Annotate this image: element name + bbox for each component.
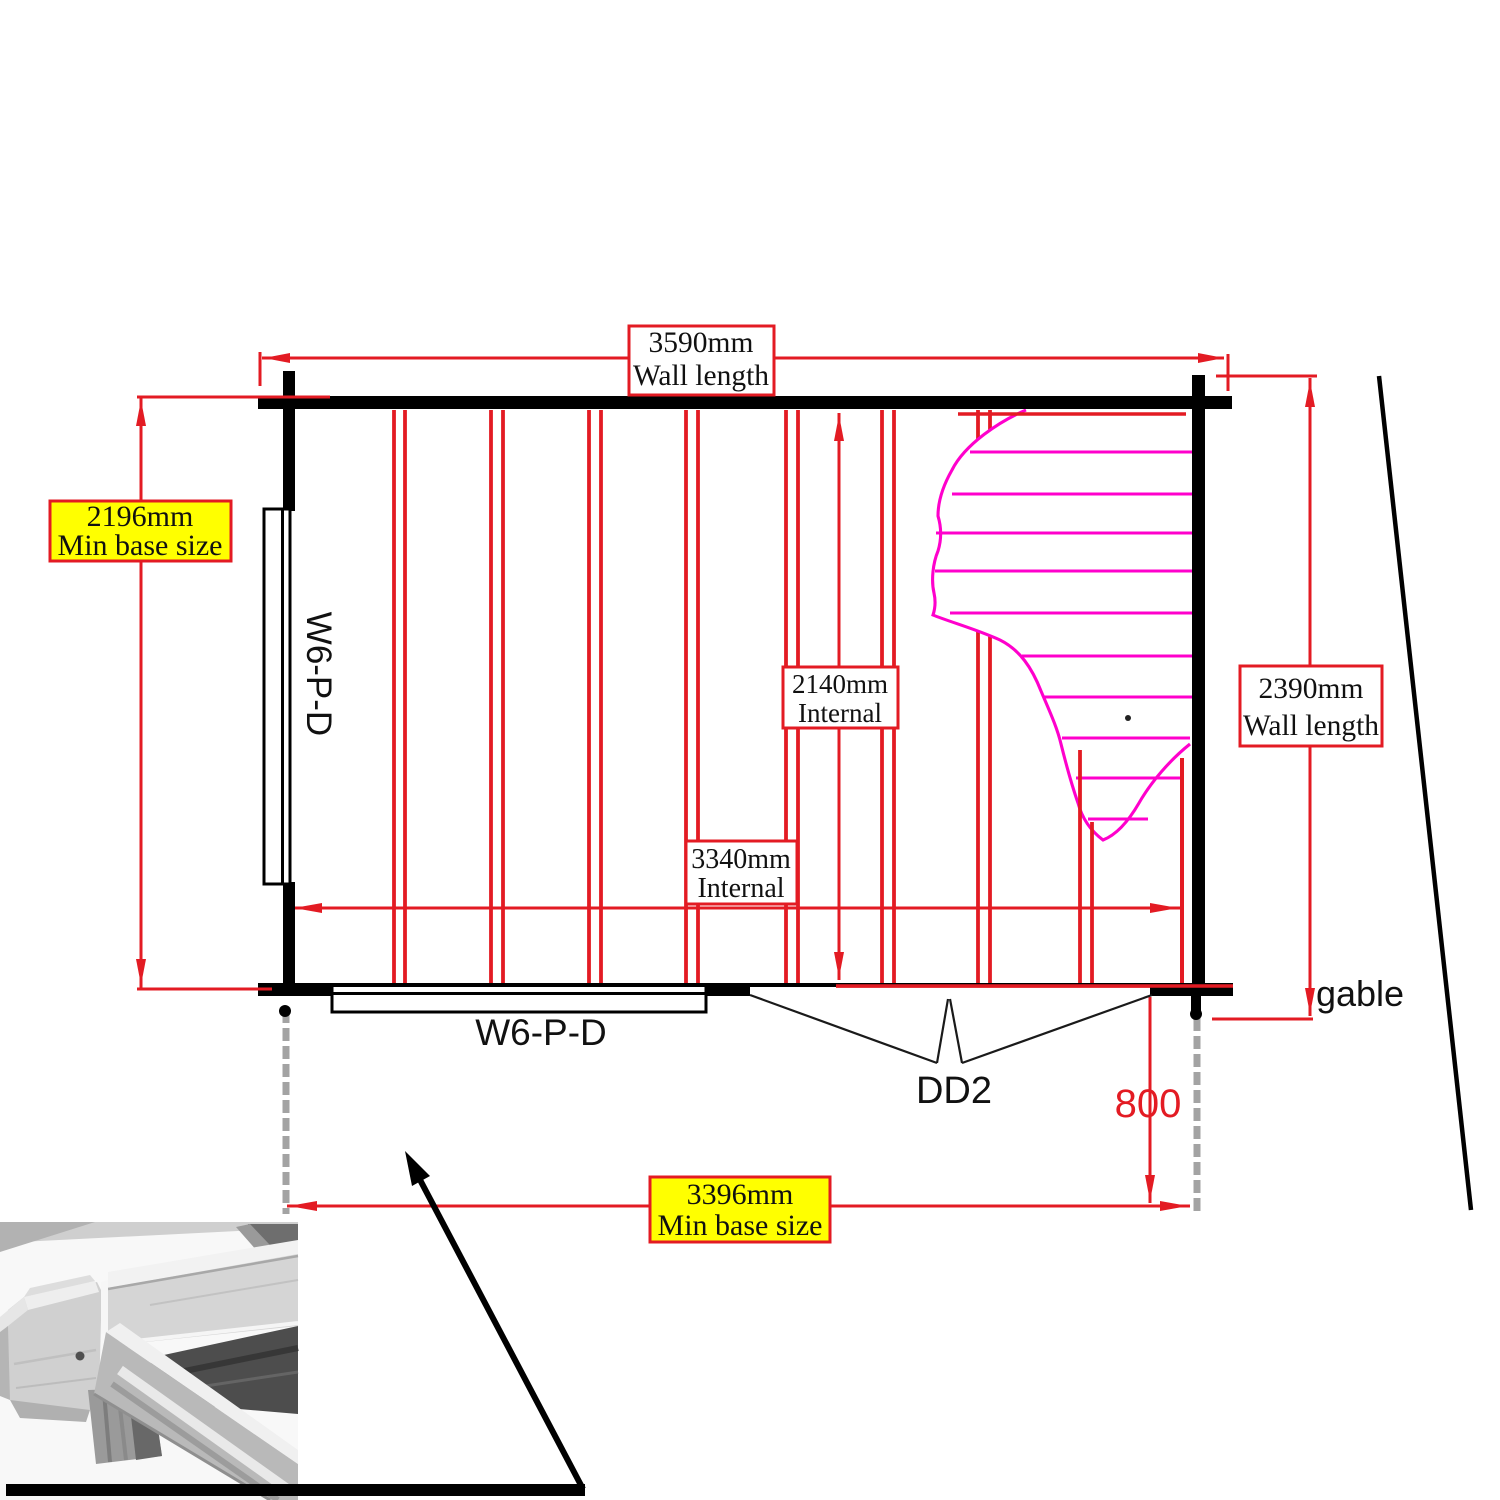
svg-text:DD2: DD2 — [916, 1070, 992, 1112]
svg-text:Min base size: Min base size — [58, 529, 223, 562]
svg-text:2390mm: 2390mm — [1259, 673, 1364, 705]
svg-text:Internal: Internal — [697, 873, 784, 904]
svg-text:3396mm: 3396mm — [687, 1178, 794, 1211]
svg-text:Wall length: Wall length — [633, 360, 769, 392]
svg-text:2140mm: 2140mm — [792, 669, 888, 699]
svg-text:W6-P-D: W6-P-D — [475, 1012, 607, 1053]
svg-text:W6-P-D: W6-P-D — [299, 612, 338, 736]
svg-text:800: 800 — [1115, 1082, 1182, 1126]
svg-text:gable: gable — [1316, 973, 1404, 1014]
svg-text:Wall length: Wall length — [1243, 710, 1379, 742]
svg-text:3340mm: 3340mm — [691, 844, 791, 875]
svg-text:3590mm: 3590mm — [649, 327, 754, 359]
svg-text:Min base size: Min base size — [658, 1209, 823, 1242]
svg-text:Internal: Internal — [798, 698, 882, 728]
